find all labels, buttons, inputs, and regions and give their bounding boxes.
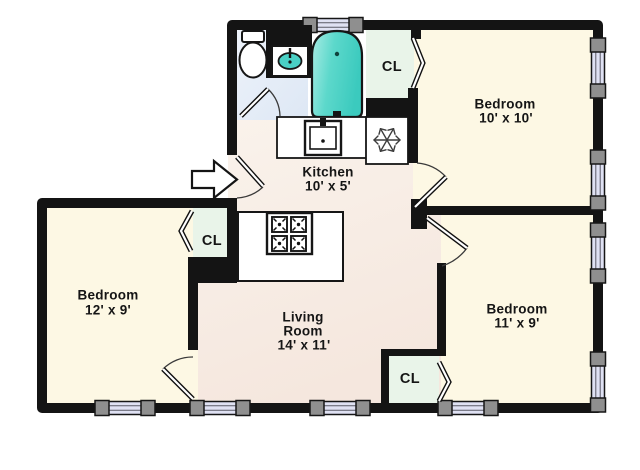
wall-segment: [411, 20, 421, 39]
room-label-bedroom-left-name: Bedroom: [77, 288, 138, 302]
bathtub-icon: [312, 31, 362, 117]
wall-segment: [381, 349, 446, 356]
wall-segment: [188, 257, 237, 283]
tub-drain: [335, 52, 339, 56]
floor-plan: Bedroom 10' x 10' Bedroom 12' x 9' Bedro…: [0, 0, 640, 470]
wall-segment: [408, 88, 418, 98]
room-label-bedroom-top-right-dims: 10' x 10': [479, 111, 533, 125]
kitchen-sink-inner: [310, 127, 336, 149]
closet-label-left: CL: [202, 234, 222, 249]
room-label-bedroom-left-dims: 12' x 9': [85, 303, 131, 317]
closet-label-bottom: CL: [400, 372, 420, 387]
window: [591, 223, 606, 283]
window: [190, 401, 250, 416]
floor-plan-drawing: [0, 0, 640, 470]
room-label-living-room-dims: 14' x 11': [278, 338, 331, 352]
vanity-drain: [288, 60, 291, 63]
toilet-icon: [240, 43, 267, 78]
room-label-kitchen-name: Kitchen: [302, 165, 353, 179]
closet-label-top: CL: [382, 60, 402, 75]
wall-segment: [437, 263, 446, 356]
kitchen-sink-drain: [321, 139, 325, 143]
window: [438, 401, 498, 416]
toilet-tank: [242, 31, 264, 42]
room-label-kitchen-dims: 10' x 5': [305, 179, 351, 193]
window: [310, 401, 370, 416]
wall-segment: [188, 283, 198, 350]
wall-segment: [381, 349, 389, 403]
window: [591, 352, 606, 412]
kitchen-faucet: [320, 118, 326, 126]
wall-segment: [408, 98, 418, 163]
window: [95, 401, 155, 416]
room-label-bedroom-bottom-right-name: Bedroom: [486, 302, 547, 316]
room-label-bedroom-top-right-name: Bedroom: [474, 97, 535, 111]
wall-segment: [227, 208, 237, 257]
window: [591, 150, 606, 210]
closet-left-floor: [193, 206, 230, 257]
room-label-living-room-line2: Room: [283, 324, 322, 338]
wall-segment: [413, 206, 598, 215]
room-label-bedroom-bottom-right-dims: 11' x 9': [494, 316, 539, 330]
exterior-mask: [0, 0, 228, 198]
room-label-living-room-line1: Living: [282, 310, 323, 324]
window: [591, 38, 606, 98]
